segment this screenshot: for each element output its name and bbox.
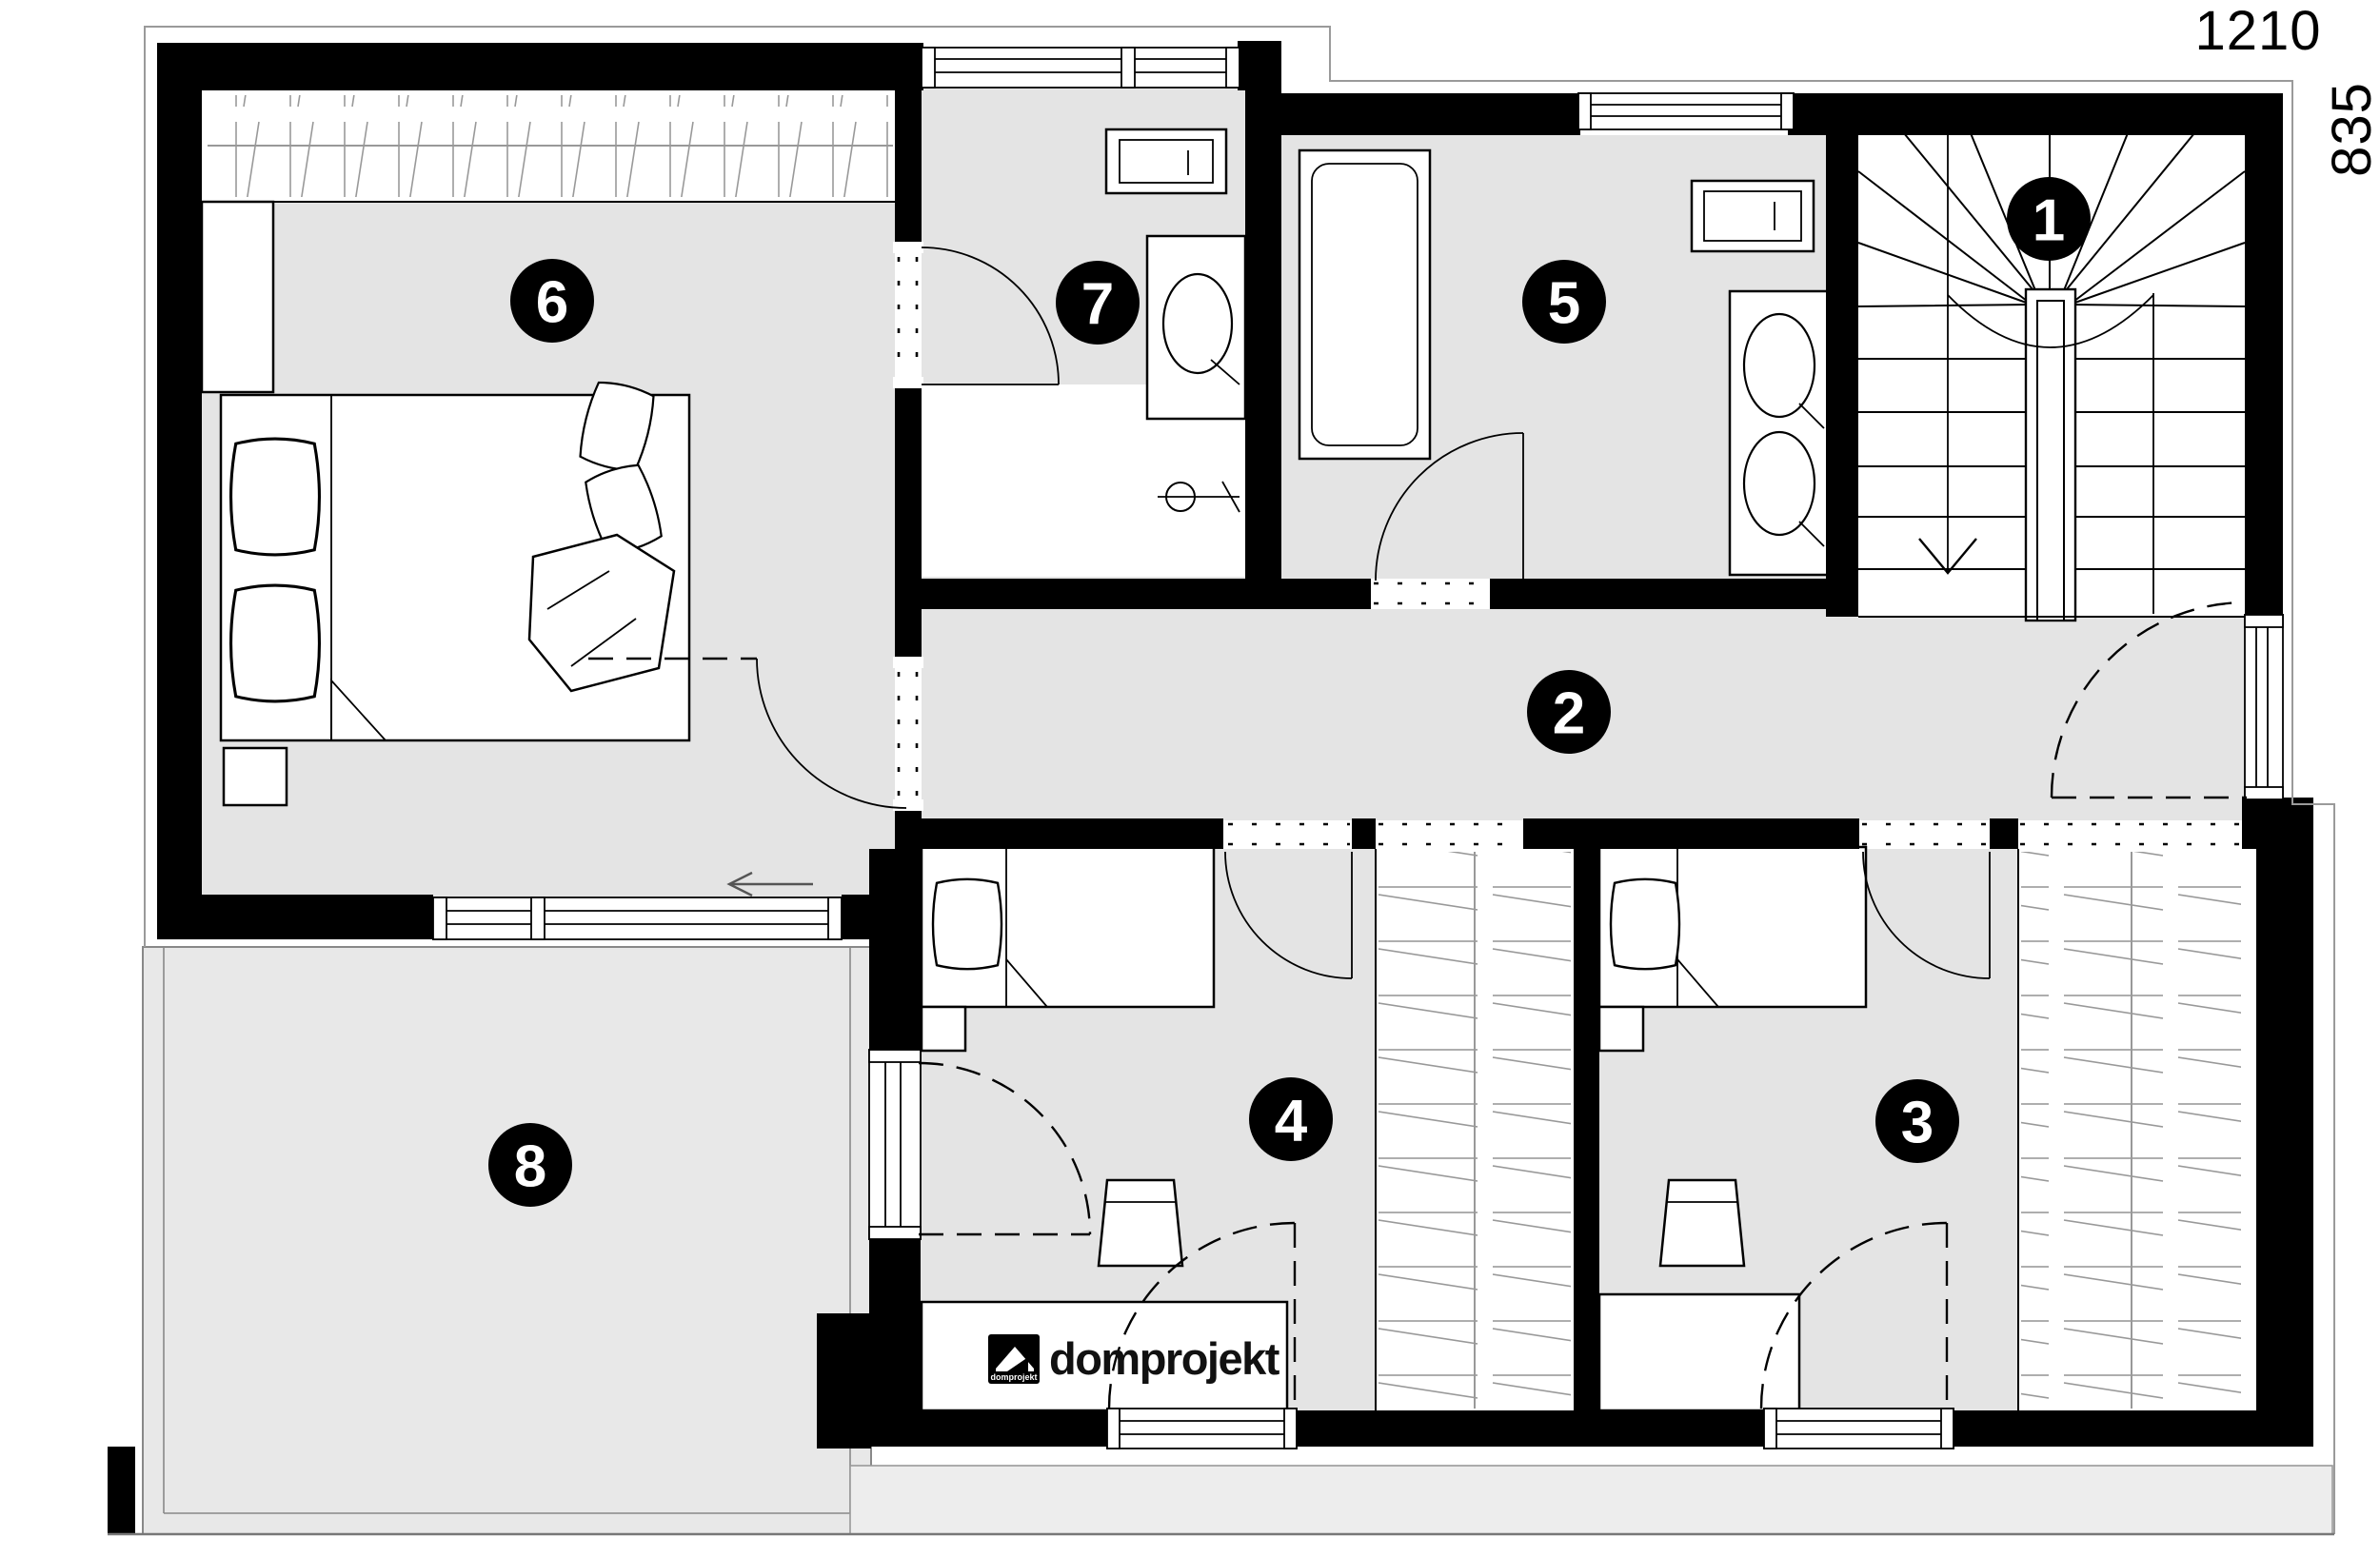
room-4-number: 4 bbox=[1275, 1088, 1308, 1153]
bathtub-icon bbox=[1299, 150, 1430, 459]
chair-icon bbox=[1099, 1180, 1182, 1266]
balcony-door-room3-south bbox=[1764, 1409, 1954, 1449]
wardrobe-room3 bbox=[2018, 849, 2244, 1410]
room-5-number: 5 bbox=[1548, 270, 1580, 336]
room-6-number: 6 bbox=[536, 269, 568, 335]
washbasin-icon bbox=[1744, 314, 1815, 417]
wardrobe-room4 bbox=[1376, 849, 1574, 1410]
balcony-floor bbox=[143, 947, 871, 1534]
window-top-room5 bbox=[1578, 93, 1794, 129]
room-1-number: 1 bbox=[2033, 187, 2065, 253]
pillow-icon bbox=[231, 585, 320, 701]
room-5-badge: 5 bbox=[1522, 260, 1606, 344]
pillow-icon bbox=[1611, 879, 1679, 969]
logo-icon-text: domprojekt bbox=[990, 1372, 1037, 1382]
balcony-door-room4-south bbox=[1107, 1409, 1297, 1449]
room-3-number: 3 bbox=[1901, 1090, 1934, 1155]
room-6-badge: 6 bbox=[510, 259, 594, 343]
washing-machine-icon bbox=[1106, 129, 1226, 193]
room-8-number: 8 bbox=[514, 1133, 546, 1199]
logo-text: domprojekt bbox=[1049, 1333, 1280, 1384]
washbasin-icon bbox=[1744, 432, 1815, 535]
window-hall-right bbox=[2245, 615, 2283, 799]
pillow-icon bbox=[933, 879, 1002, 969]
floor-plan-page: 1 2 3 4 5 6 7 8 1210 83 bbox=[0, 0, 2380, 1557]
floor-plan: 1 2 3 4 5 6 7 8 1210 83 bbox=[0, 0, 2380, 1557]
wardrobe-room6 bbox=[202, 90, 895, 202]
balcony bbox=[108, 947, 871, 1534]
room-8-badge: 8 bbox=[488, 1123, 572, 1207]
room-3-badge: 3 bbox=[1875, 1079, 1959, 1163]
chair-icon bbox=[1660, 1180, 1744, 1266]
logo: domprojekt domprojekt bbox=[988, 1333, 1280, 1384]
balcony-door-room4-west bbox=[869, 1050, 921, 1239]
washbasin-icon bbox=[1163, 274, 1232, 373]
nightstand-icon bbox=[224, 748, 287, 805]
cabinet-icon bbox=[202, 202, 273, 392]
room-2-number: 2 bbox=[1553, 680, 1585, 746]
window-top-room7 bbox=[922, 48, 1240, 88]
lower-roof-strip bbox=[850, 1466, 2332, 1534]
nightstand-icon bbox=[1599, 1007, 1643, 1051]
nightstand-icon bbox=[922, 1007, 965, 1051]
room-7-badge: 7 bbox=[1056, 261, 1140, 345]
duvet-icon bbox=[529, 535, 674, 691]
dimension-height-label: 835 bbox=[2321, 82, 2380, 177]
pillow-icon bbox=[231, 439, 320, 555]
room-1-badge: 1 bbox=[2007, 177, 2091, 261]
window-room6-balcony bbox=[433, 897, 842, 939]
balcony-wall-stub bbox=[108, 1447, 135, 1534]
room-7-number: 7 bbox=[1081, 271, 1114, 337]
room-2-badge: 2 bbox=[1527, 670, 1611, 754]
dimension-width-label: 1210 bbox=[2194, 0, 2321, 62]
room-4-badge: 4 bbox=[1249, 1077, 1333, 1161]
